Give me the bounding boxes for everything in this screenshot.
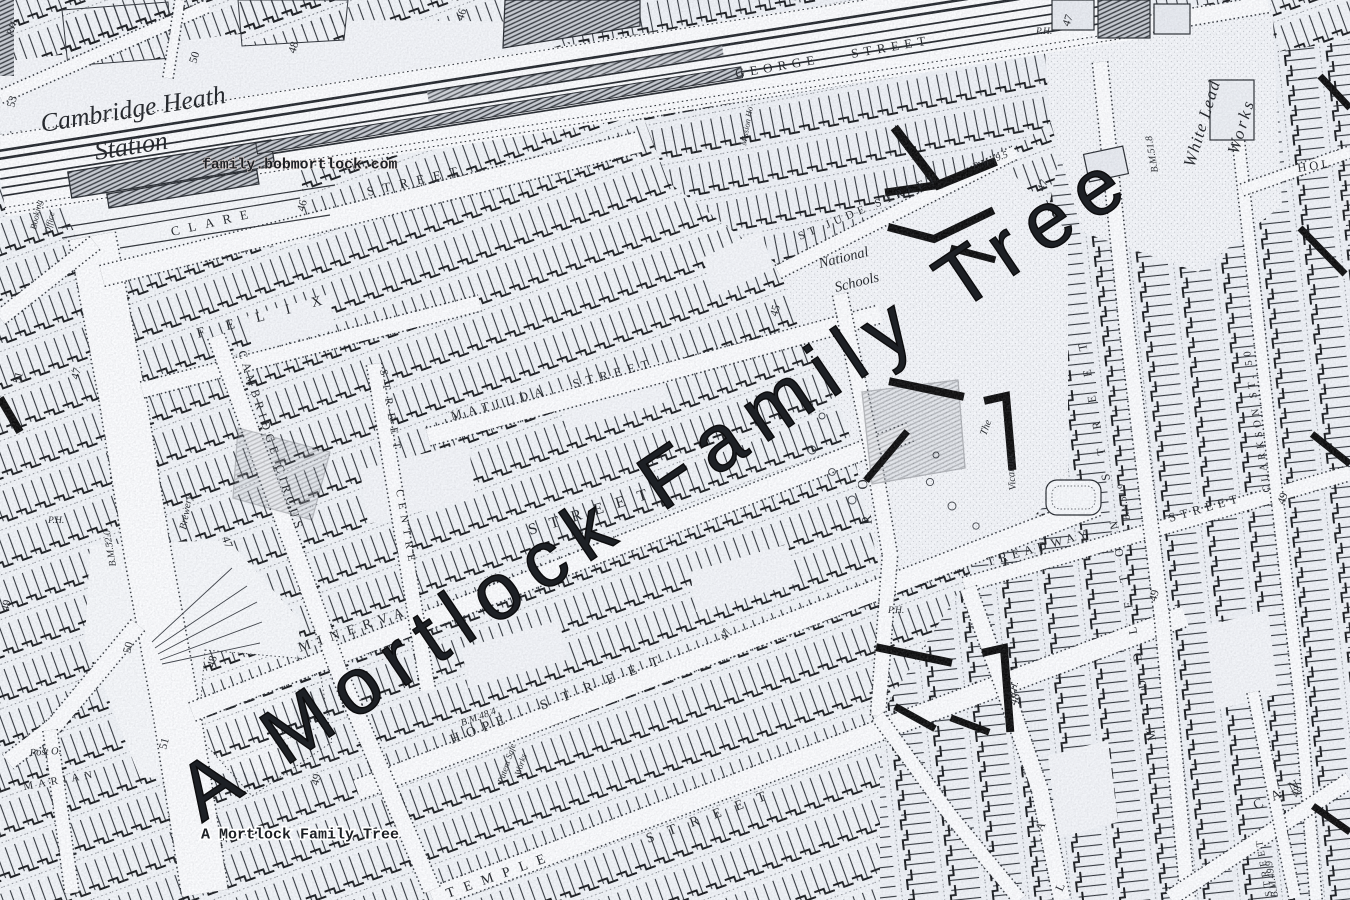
svg-text:family.bobmortlock.com: family.bobmortlock.com <box>202 158 397 174</box>
svg-text:A Mortlock Family Tree: A Mortlock Family Tree <box>201 827 399 844</box>
